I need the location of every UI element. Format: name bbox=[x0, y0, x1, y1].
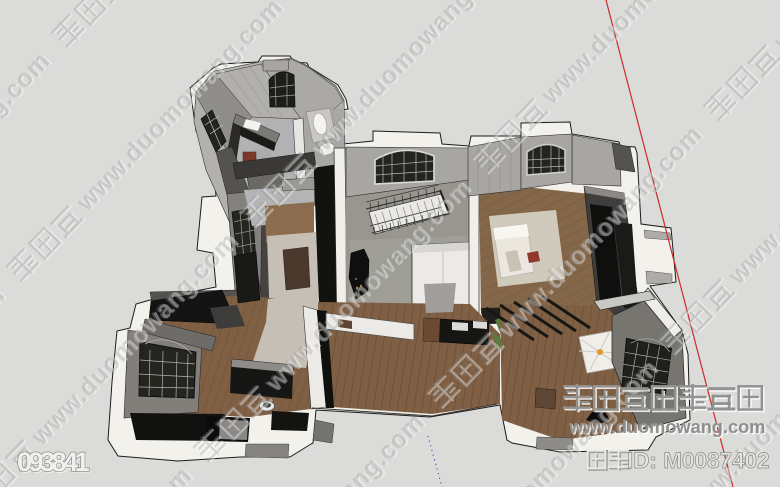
svg-text:ID: M0087402: ID: M0087402 bbox=[627, 448, 770, 473]
svg-text:093841: 093841 bbox=[17, 447, 90, 477]
svg-text:www.duomowang.com: www.duomowang.com bbox=[568, 417, 765, 437]
